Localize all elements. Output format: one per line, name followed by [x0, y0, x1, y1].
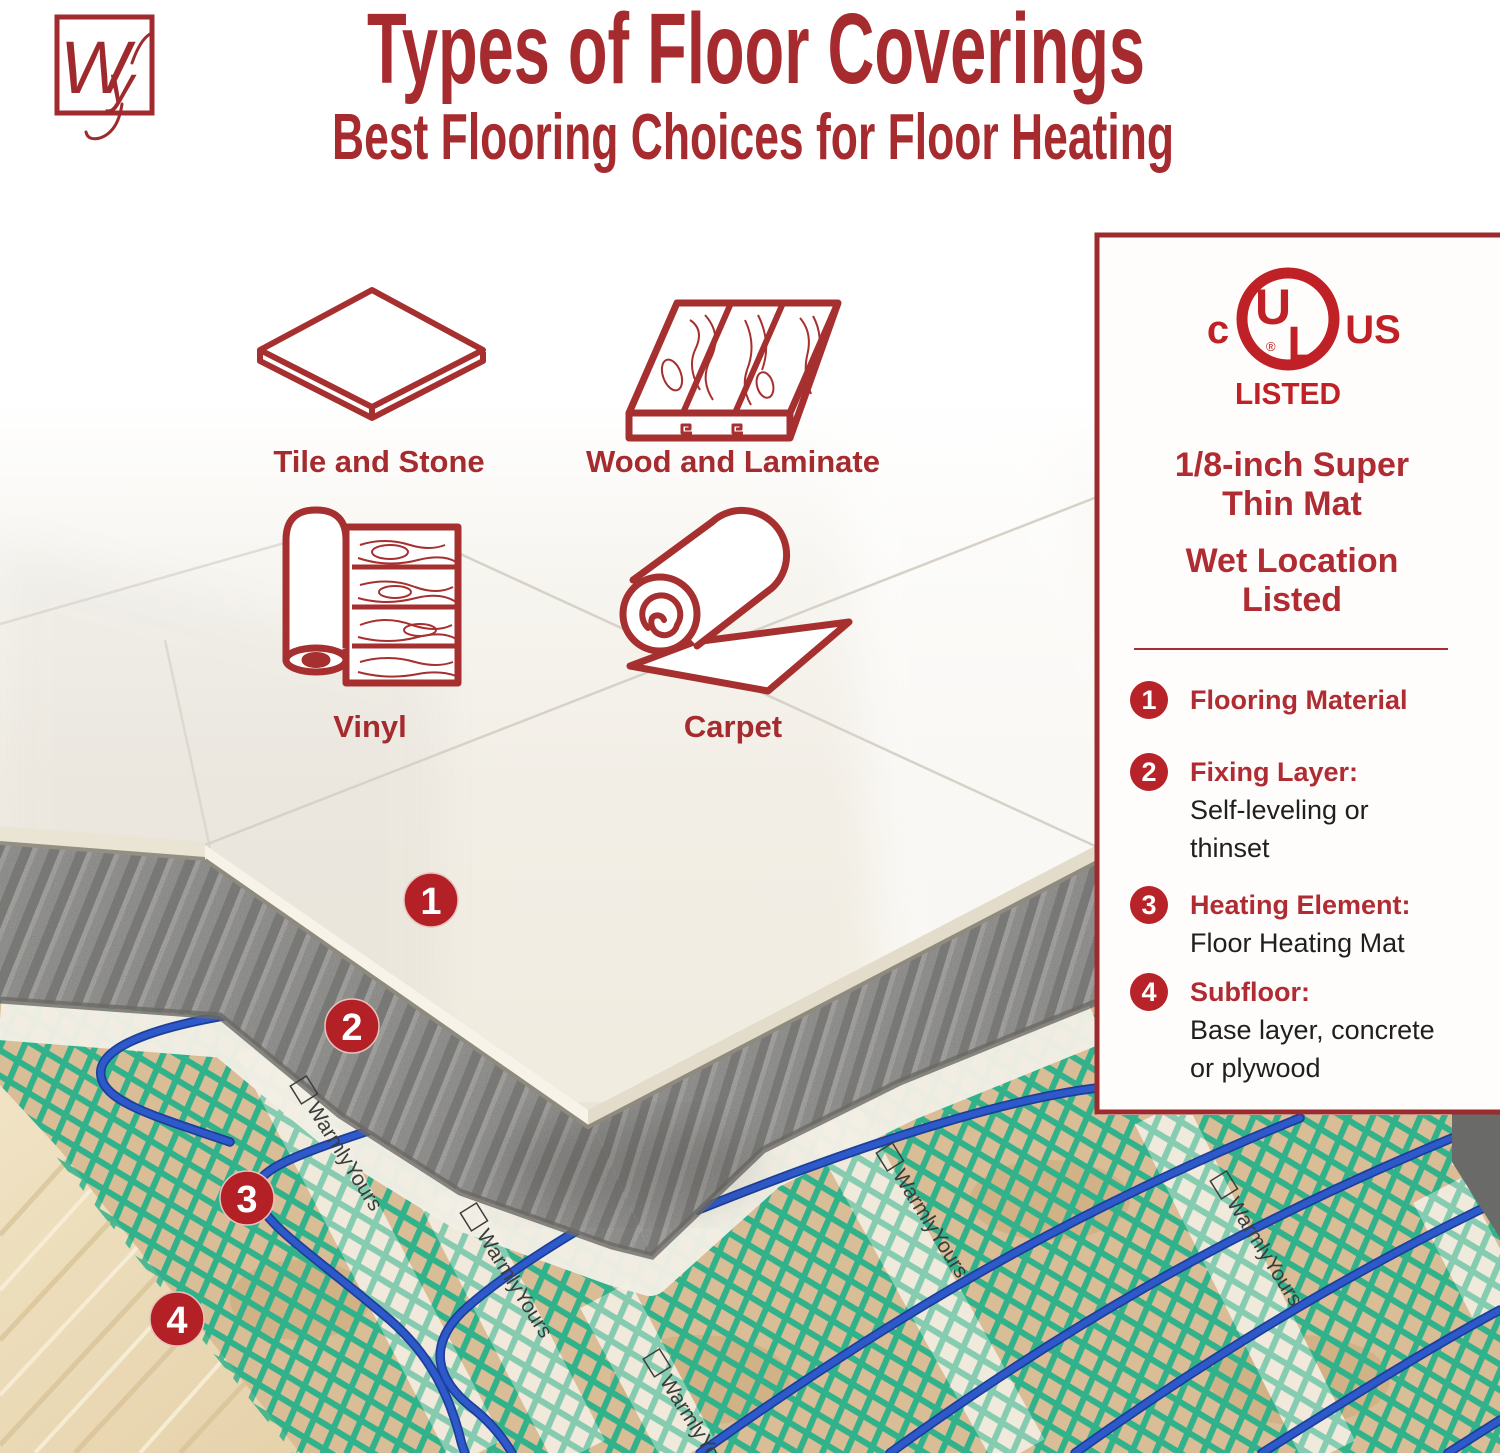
svg-text:1: 1: [1141, 685, 1156, 715]
svg-text:or plywood: or plywood: [1190, 1053, 1321, 1083]
svg-text:®: ®: [1266, 339, 1276, 354]
svg-text:Tile and Stone: Tile and Stone: [273, 444, 484, 479]
svg-text:Wet Location: Wet Location: [1186, 542, 1399, 580]
svg-text:c: c: [1207, 308, 1229, 352]
svg-text:Listed: Listed: [1242, 581, 1342, 619]
svg-text:Vinyl: Vinyl: [333, 709, 407, 744]
svg-text:2: 2: [341, 1007, 362, 1049]
svg-text:Self-leveling or: Self-leveling or: [1190, 795, 1369, 825]
svg-text:Best Flooring Choices for Floo: Best Flooring Choices for Floor Heating: [332, 100, 1174, 173]
svg-text:U: U: [1255, 279, 1291, 335]
svg-text:Floor Heating Mat: Floor Heating Mat: [1190, 928, 1405, 958]
svg-text:L: L: [1287, 318, 1316, 371]
svg-text:LISTED: LISTED: [1235, 376, 1341, 411]
svg-text:Fixing Layer:: Fixing Layer:: [1190, 757, 1358, 787]
svg-text:Base layer, concrete: Base layer, concrete: [1190, 1015, 1435, 1045]
svg-text:US: US: [1345, 308, 1401, 352]
svg-text:Flooring Material: Flooring Material: [1190, 685, 1408, 715]
svg-text:Wood and Laminate: Wood and Laminate: [586, 444, 880, 479]
svg-text:3: 3: [236, 1179, 257, 1221]
svg-text:Thin Mat: Thin Mat: [1222, 485, 1362, 523]
svg-text:4: 4: [1141, 977, 1156, 1007]
svg-text:Subfloor:: Subfloor:: [1190, 977, 1310, 1007]
svg-text:3: 3: [1141, 890, 1156, 920]
svg-text:2: 2: [1141, 757, 1156, 787]
svg-text:Carpet: Carpet: [684, 709, 782, 744]
svg-text:thinset: thinset: [1190, 833, 1270, 863]
svg-text:Heating Element:: Heating Element:: [1190, 890, 1411, 920]
svg-text:Types of Floor Coverings: Types of Floor Coverings: [367, 0, 1145, 105]
svg-text:1/8-inch Super: 1/8-inch Super: [1175, 446, 1409, 484]
svg-text:1: 1: [420, 881, 441, 923]
svg-text:4: 4: [166, 1300, 187, 1342]
